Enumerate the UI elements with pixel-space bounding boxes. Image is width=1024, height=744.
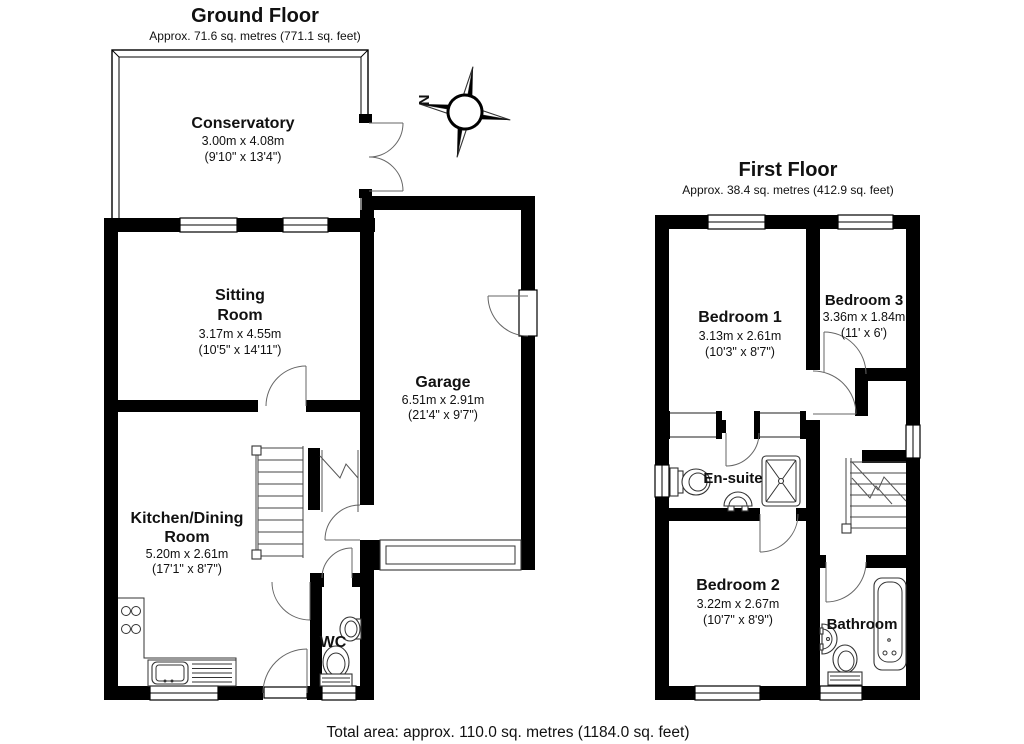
sitting-room-metric: 3.17m x 4.55m xyxy=(199,327,282,341)
bedroom2-imperial: (10'7" x 8'9") xyxy=(703,613,773,627)
sitting-room-window-2 xyxy=(283,218,328,232)
first-openings xyxy=(726,420,758,433)
bedroom1-metric: 3.13m x 2.61m xyxy=(699,329,782,343)
kitchen-metric: 5.20m x 2.61m xyxy=(146,547,229,561)
total-area-label: Total area: approx. 110.0 sq. metres (11… xyxy=(326,724,689,741)
bedroom3-imperial: (11' x 6') xyxy=(841,326,887,340)
bedroom1-label: Bedroom 1 xyxy=(698,309,782,326)
bathroom-label: Bathroom xyxy=(827,616,898,633)
sitting-room-window-1 xyxy=(180,218,237,232)
compass-north-label: N xyxy=(416,95,433,106)
garage-label: Garage xyxy=(415,374,470,391)
kitchen-label-1: Kitchen/Dining xyxy=(131,510,244,527)
kitchen-sink-icon xyxy=(148,660,236,686)
sitting-room-label-1: Sitting xyxy=(215,287,265,304)
conservatory-label: Conservatory xyxy=(191,115,294,132)
first-floor-title: First Floor xyxy=(739,159,838,181)
floorplan-canvas: N Ground Floor Approx. 71.6 sq. metres (… xyxy=(0,0,1024,744)
shower-icon xyxy=(762,456,800,506)
ensuite-label: En-suite xyxy=(703,470,762,487)
bedroom3-label: Bedroom 3 xyxy=(825,292,903,309)
ensuite-window xyxy=(655,465,669,497)
landing-window xyxy=(906,425,920,458)
bedroom1-window xyxy=(708,215,765,229)
bathroom-window xyxy=(820,686,862,700)
conservatory-imperial: (9'10" x 13'4") xyxy=(205,150,282,164)
sitting-room-imperial: (10'5" x 14'11") xyxy=(199,343,282,357)
bedroom2-window xyxy=(695,686,760,700)
garage-door xyxy=(380,540,521,570)
garage-metric: 6.51m x 2.91m xyxy=(402,393,485,407)
wc-window xyxy=(322,686,356,700)
kitchen-window xyxy=(150,686,218,700)
garage-imperial: (21'4" x 9'7") xyxy=(408,408,478,422)
bedroom2-label: Bedroom 2 xyxy=(696,577,780,594)
bedroom2-metric: 3.22m x 2.67m xyxy=(697,597,780,611)
wc-label: WC xyxy=(320,634,347,651)
first-floor-area: Approx. 38.4 sq. metres (412.9 sq. feet) xyxy=(682,183,893,197)
sitting-room-label-2: Room xyxy=(217,307,262,324)
kitchen-label-2: Room xyxy=(164,529,209,546)
ground-floor-area: Approx. 71.6 sq. metres (771.1 sq. feet) xyxy=(149,29,360,43)
bedroom3-metric: 3.36m x 1.84m xyxy=(823,310,906,324)
bedroom1-imperial: (10'3" x 8'7") xyxy=(705,345,775,359)
conservatory-metric: 3.00m x 4.08m xyxy=(202,134,285,148)
ground-floor-title: Ground Floor xyxy=(191,5,319,27)
bedroom3-window xyxy=(838,215,893,229)
kitchen-imperial: (17'1" x 8'7") xyxy=(152,562,222,576)
